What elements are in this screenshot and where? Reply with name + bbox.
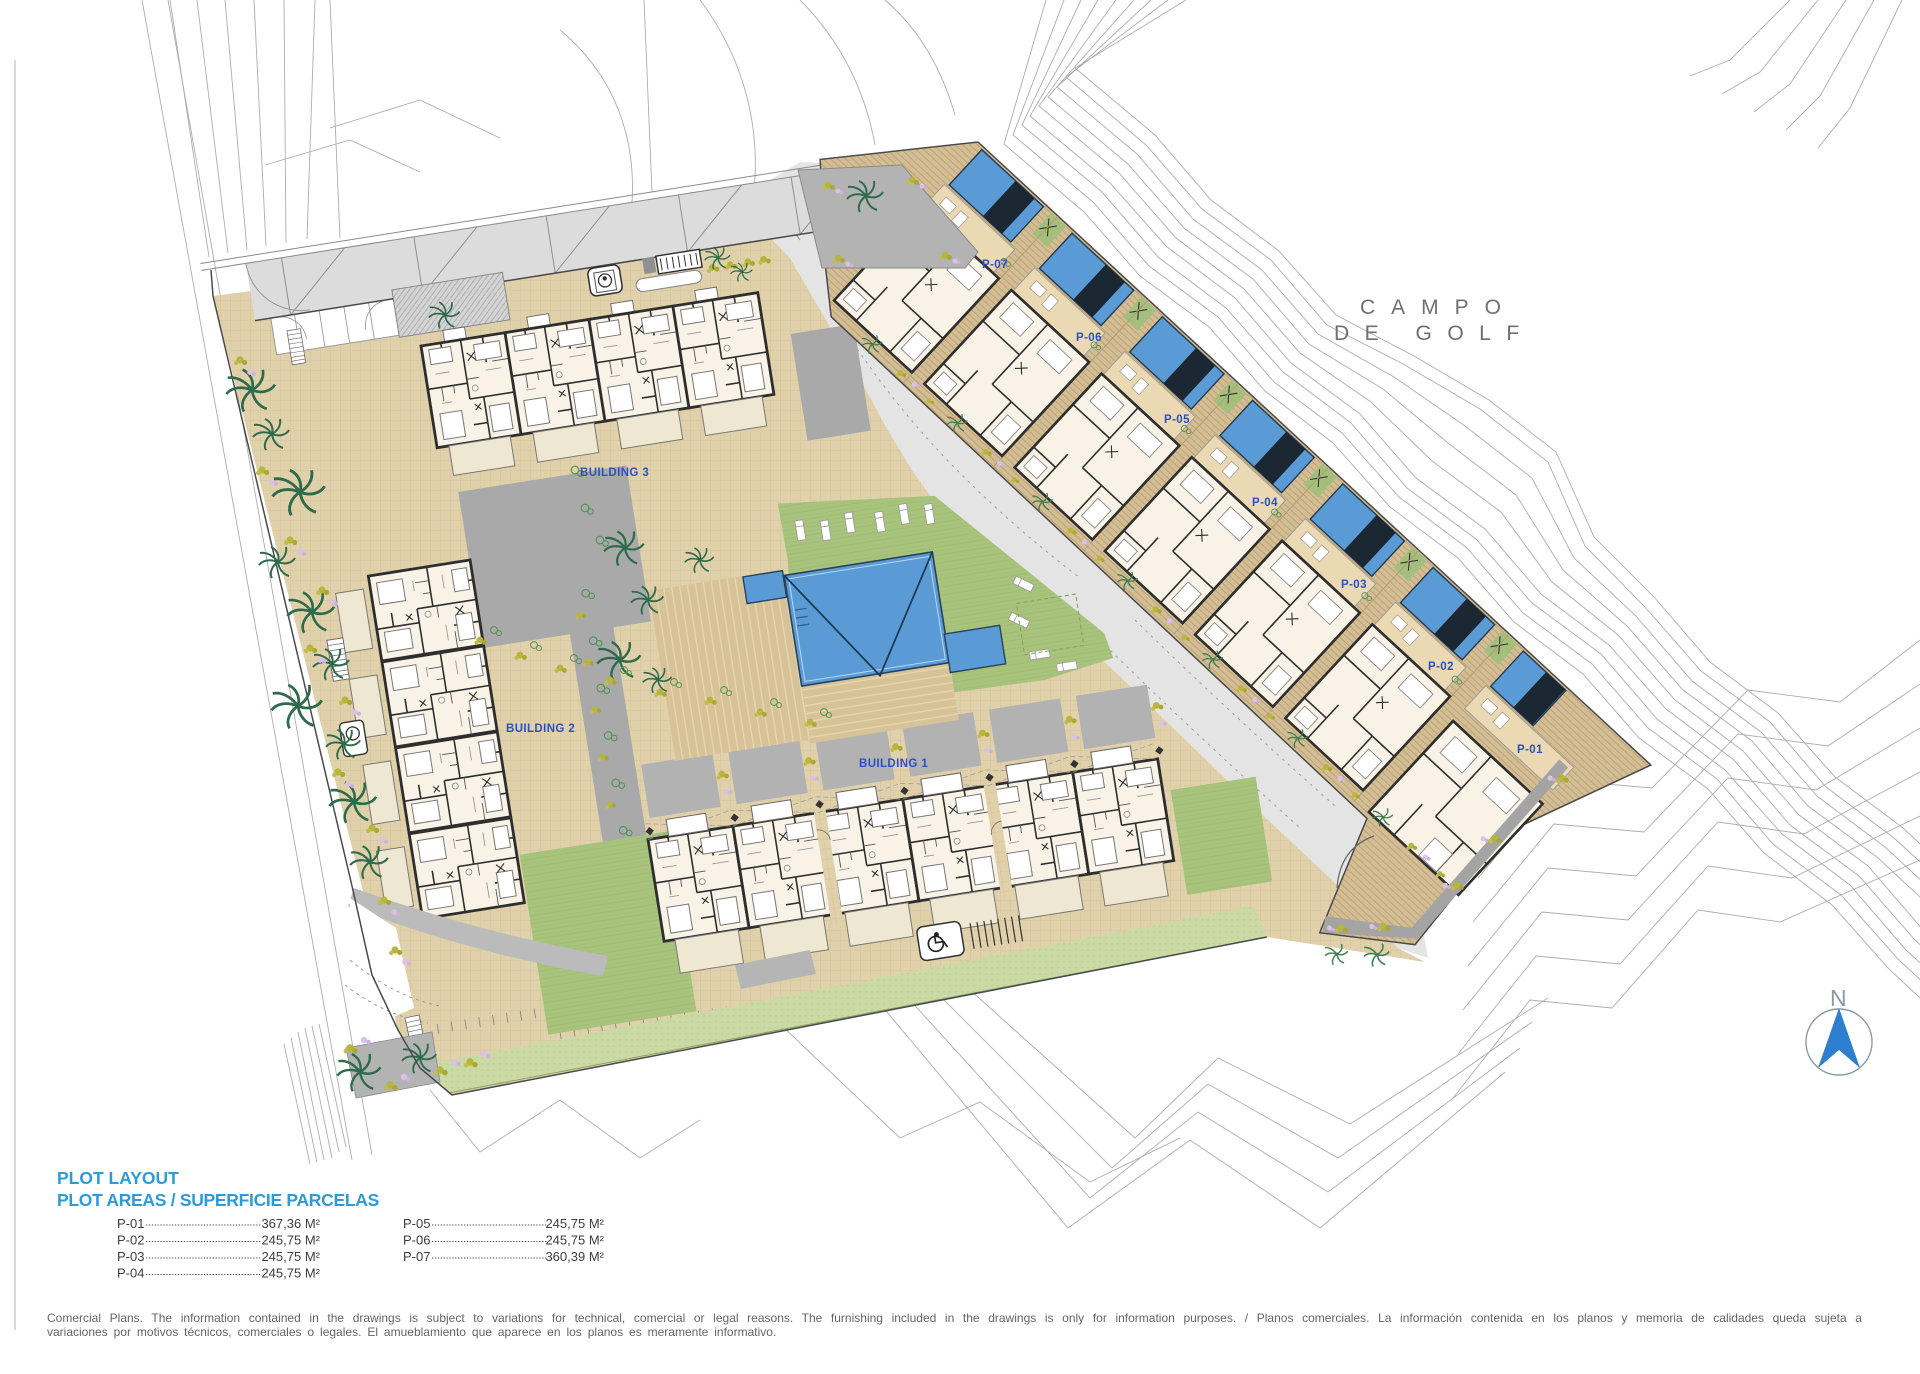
svg-text:CAMPO: CAMPO [1360, 296, 1517, 319]
svg-text:P-07: P-07 [982, 259, 1008, 271]
svg-text:P-03: P-03 [117, 1249, 144, 1264]
svg-text:BUILDING 3: BUILDING 3 [580, 467, 649, 479]
svg-text:245,75 M²: 245,75 M² [545, 1233, 604, 1248]
svg-text:P-05: P-05 [1164, 414, 1190, 426]
svg-text:367,36 M²: 367,36 M² [261, 1216, 320, 1231]
svg-text:P-06: P-06 [403, 1233, 430, 1248]
svg-text:245,75 M²: 245,75 M² [545, 1216, 604, 1231]
svg-text:BUILDING 2: BUILDING 2 [506, 723, 575, 735]
svg-text:PLOT LAYOUT: PLOT LAYOUT [57, 1168, 179, 1188]
svg-text:P-01: P-01 [117, 1216, 144, 1231]
svg-text:245,75 M²: 245,75 M² [261, 1249, 320, 1264]
svg-text:P-01: P-01 [1517, 744, 1543, 756]
svg-text:N: N [1830, 985, 1847, 1011]
svg-text:DE GOLF: DE GOLF [1334, 322, 1535, 345]
svg-text:BUILDING 1: BUILDING 1 [859, 758, 928, 770]
svg-text:245,75 M²: 245,75 M² [261, 1266, 320, 1281]
svg-text:245,75 M²: 245,75 M² [261, 1233, 320, 1248]
svg-text:P-07: P-07 [403, 1249, 430, 1264]
svg-text:P-04: P-04 [1252, 497, 1278, 509]
svg-text:P-06: P-06 [1076, 332, 1102, 344]
svg-text:P-05: P-05 [403, 1216, 430, 1231]
svg-text:P-04: P-04 [117, 1266, 144, 1281]
svg-text:P-02: P-02 [1428, 661, 1454, 673]
svg-text:P-03: P-03 [1341, 579, 1367, 591]
svg-text:360,39 M²: 360,39 M² [545, 1249, 604, 1264]
svg-text:P-02: P-02 [117, 1233, 144, 1248]
svg-text:PLOT AREAS / SUPERFICIE PARCEL: PLOT AREAS / SUPERFICIE PARCELAS [57, 1190, 379, 1210]
